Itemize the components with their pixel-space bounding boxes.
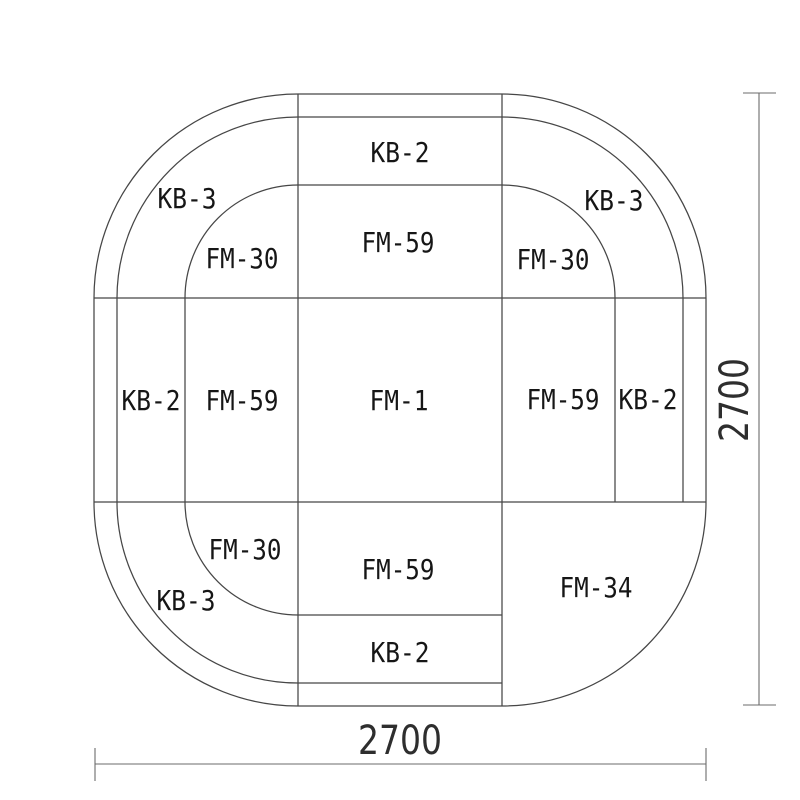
module-label-fm30-bottom-left: FM-30 bbox=[209, 533, 282, 566]
module-label-kb3-bottom-left: KB-3 bbox=[157, 584, 216, 617]
dimension-width-label: 2700 bbox=[358, 718, 442, 764]
module-label-fm59-top: FM-59 bbox=[362, 226, 435, 259]
module-label-kb2-right: KB-2 bbox=[619, 383, 678, 416]
module-label-kb3-top-left: KB-3 bbox=[158, 182, 217, 215]
module-label-kb3-top-right: KB-3 bbox=[585, 184, 644, 217]
module-label-fm59-bottom: FM-59 bbox=[362, 553, 435, 586]
module-label-kb2-bottom: KB-2 bbox=[371, 636, 430, 669]
dimension-height-label: 2700 bbox=[712, 358, 758, 442]
module-label-kb2-left: KB-2 bbox=[122, 384, 181, 417]
module-label-fm59-right: FM-59 bbox=[527, 383, 600, 416]
sofa-layout-plan: KB-2 FM-59 KB-3 FM-30 KB-3 FM-30 KB-2 FM… bbox=[0, 0, 800, 800]
module-label-kb2-top: KB-2 bbox=[371, 136, 430, 169]
module-label-fm1-center: FM-1 bbox=[370, 384, 429, 417]
drawing-canvas: KB-2 FM-59 KB-3 FM-30 KB-3 FM-30 KB-2 FM… bbox=[0, 0, 800, 800]
module-label-fm30-top-left: FM-30 bbox=[206, 242, 279, 275]
module-label-fm34-bottom-right: FM-34 bbox=[560, 571, 633, 604]
module-label-fm30-top-right: FM-30 bbox=[517, 243, 590, 276]
module-label-fm59-left: FM-59 bbox=[206, 384, 279, 417]
